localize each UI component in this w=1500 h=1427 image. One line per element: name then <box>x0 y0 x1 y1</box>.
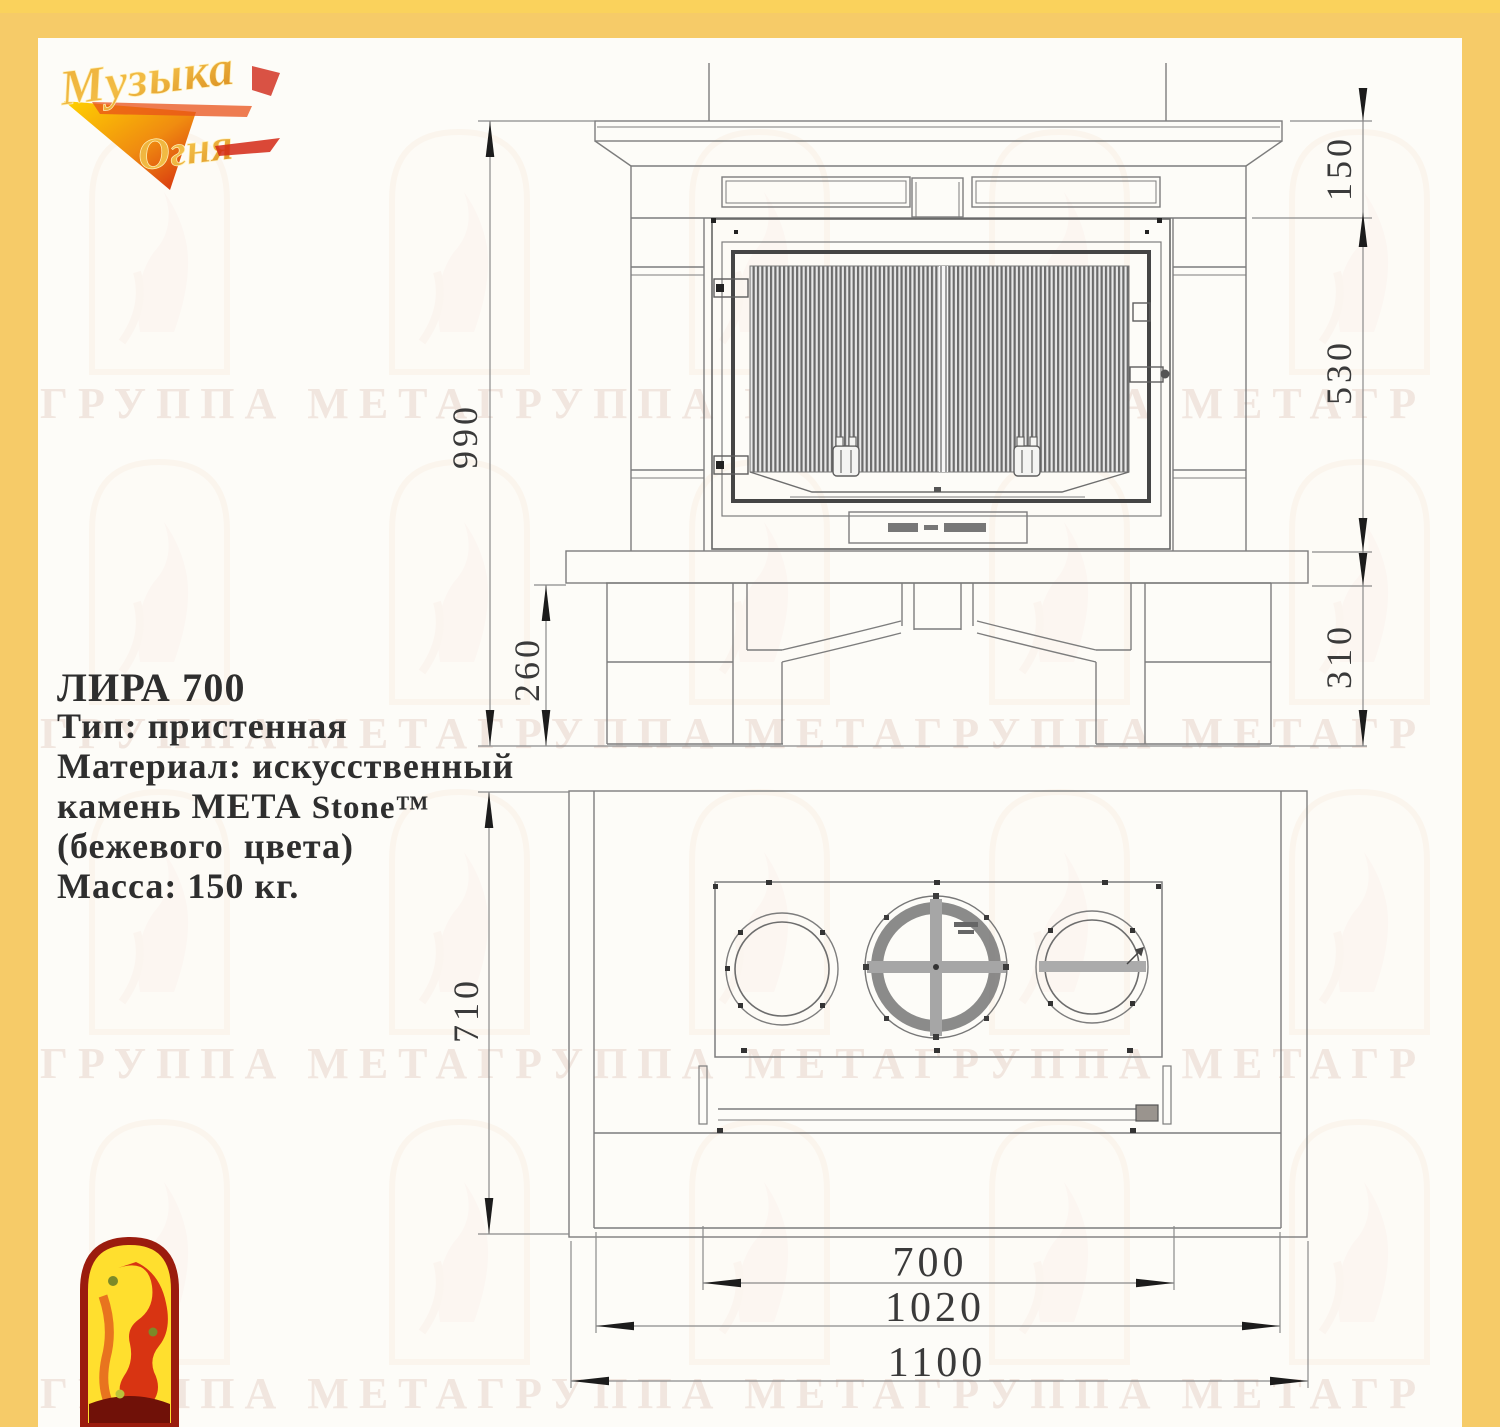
svg-text:(бежевого цвета): (бежевого цвета) <box>57 826 354 866</box>
svg-text:260: 260 <box>507 636 547 702</box>
svg-text:990: 990 <box>445 403 485 469</box>
svg-text:710: 710 <box>446 977 486 1043</box>
svg-text:Масса: 150 кг.: Масса: 150 кг. <box>57 866 299 906</box>
svg-text:1020: 1020 <box>885 1285 985 1331</box>
svg-text:ЛИРА 700: ЛИРА 700 <box>57 665 246 710</box>
svg-text:Тип: пристенная: Тип: пристенная <box>57 706 348 746</box>
svg-text:530: 530 <box>1319 339 1359 405</box>
svg-text:700: 700 <box>893 1240 968 1286</box>
svg-text:150: 150 <box>1319 135 1359 201</box>
svg-text:камень МЕТА Stone™: камень МЕТА Stone™ <box>57 786 430 826</box>
svg-text:Материал: искусственный: Материал: искусственный <box>57 746 514 786</box>
svg-text:ГРУППА МЕТАГРУППА МЕТАГРУППА М: ГРУППА МЕТАГРУППА МЕТАГРУППА МЕТАГР <box>40 1039 1426 1088</box>
svg-text:1100: 1100 <box>888 1340 986 1386</box>
svg-text:ГРУППА МЕТАГРУППА МЕТАГРУППА М: ГРУППА МЕТАГРУППА МЕТАГРУППА МЕТАГР <box>40 1369 1426 1418</box>
svg-text:310: 310 <box>1319 623 1359 689</box>
